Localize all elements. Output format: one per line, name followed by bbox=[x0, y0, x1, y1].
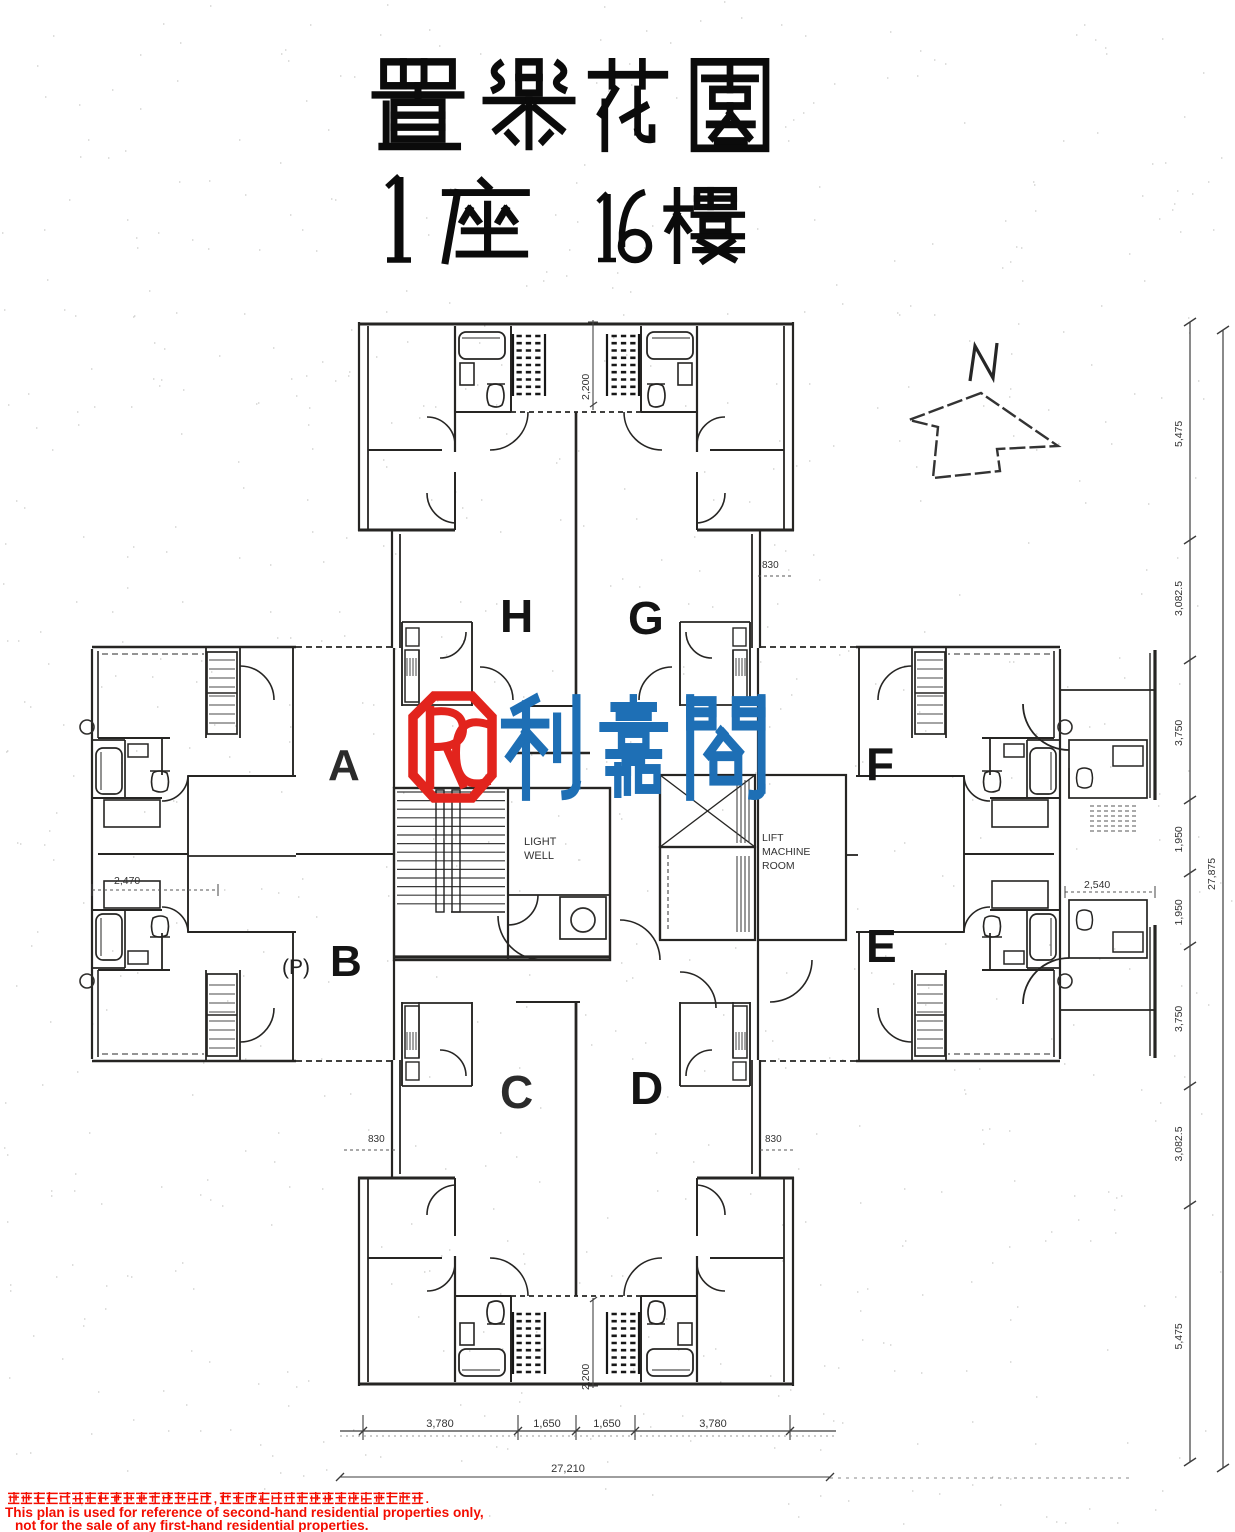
svg-text:.: . bbox=[426, 1492, 429, 1506]
svg-text:B: B bbox=[330, 937, 362, 986]
svg-text:27,210: 27,210 bbox=[551, 1463, 585, 1475]
svg-text:G: G bbox=[628, 592, 664, 644]
svg-text:2,540: 2,540 bbox=[1084, 879, 1110, 891]
svg-text:3,780: 3,780 bbox=[699, 1418, 727, 1430]
svg-text:3,750: 3,750 bbox=[1173, 1006, 1185, 1032]
svg-text:E: E bbox=[866, 920, 897, 972]
svg-text:2,200: 2,200 bbox=[580, 1364, 592, 1390]
svg-text:MACHINE: MACHINE bbox=[762, 846, 810, 858]
svg-text:1,650: 1,650 bbox=[593, 1418, 621, 1430]
svg-text:3,750: 3,750 bbox=[1173, 720, 1185, 746]
svg-text:1,950: 1,950 bbox=[1173, 826, 1185, 852]
svg-text:1,950: 1,950 bbox=[1173, 899, 1185, 925]
svg-text:WELL: WELL bbox=[524, 850, 554, 862]
svg-text:F: F bbox=[866, 738, 894, 790]
svg-text:D: D bbox=[630, 1062, 663, 1114]
svg-text:27,875: 27,875 bbox=[1206, 858, 1218, 890]
svg-text:2,200: 2,200 bbox=[580, 374, 592, 400]
svg-text:not for the sale of any first-: not for the sale of any first-hand resid… bbox=[15, 1518, 369, 1532]
svg-text:H: H bbox=[500, 590, 533, 642]
svg-text:830: 830 bbox=[765, 1134, 782, 1145]
svg-text:5,475: 5,475 bbox=[1173, 1323, 1185, 1349]
svg-text:5,475: 5,475 bbox=[1173, 421, 1185, 447]
svg-text:LIGHT: LIGHT bbox=[524, 836, 557, 848]
svg-text:3,082.5: 3,082.5 bbox=[1173, 1126, 1185, 1161]
svg-text:C: C bbox=[500, 1066, 533, 1118]
svg-text:(P): (P) bbox=[282, 956, 310, 979]
svg-text:3,082.5: 3,082.5 bbox=[1173, 581, 1185, 616]
svg-text:,: , bbox=[214, 1492, 217, 1506]
svg-text:1,650: 1,650 bbox=[533, 1418, 561, 1430]
svg-text:A: A bbox=[328, 741, 360, 790]
svg-text:830: 830 bbox=[368, 1134, 385, 1145]
svg-text:830: 830 bbox=[762, 560, 779, 571]
svg-text:3,780: 3,780 bbox=[426, 1418, 454, 1430]
svg-text:2,470: 2,470 bbox=[114, 875, 140, 887]
svg-text:LIFT: LIFT bbox=[762, 832, 784, 844]
svg-text:ROOM: ROOM bbox=[762, 860, 795, 872]
